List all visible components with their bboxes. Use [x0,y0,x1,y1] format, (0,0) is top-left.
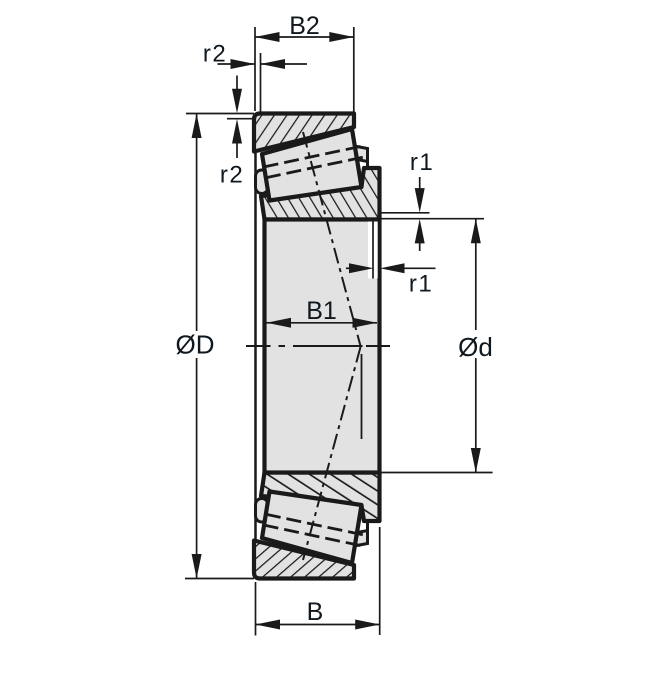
svg-text:B2: B2 [289,12,320,40]
svg-text:r1: r1 [409,271,433,298]
svg-text:r2: r2 [220,162,244,189]
svg-text:Ød: Ød [458,332,493,362]
svg-text:r1: r1 [410,149,434,176]
svg-text:r2: r2 [203,41,227,68]
svg-text:ØD: ØD [176,330,215,360]
svg-text:B1: B1 [306,297,337,325]
svg-text:B: B [307,598,324,626]
